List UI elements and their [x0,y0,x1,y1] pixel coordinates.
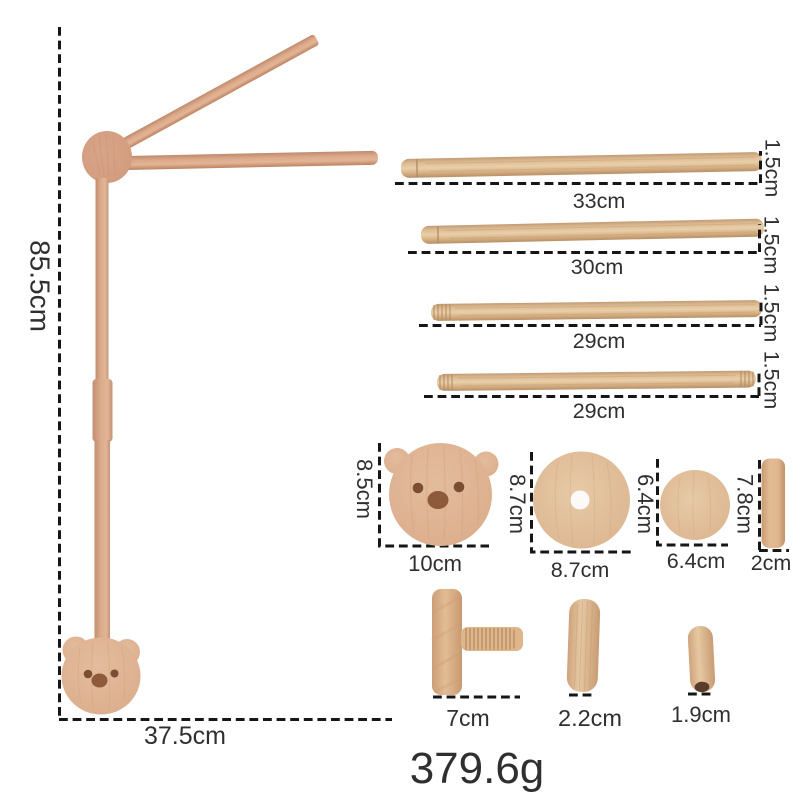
svg-text:8.7cm: 8.7cm [505,474,530,534]
svg-text:1.5cm: 1.5cm [759,351,783,410]
svg-text:379.6g: 379.6g [410,744,545,793]
svg-text:7.8cm: 7.8cm [733,474,758,534]
svg-text:1.5cm: 1.5cm [759,284,783,343]
svg-text:29cm: 29cm [573,399,626,423]
svg-text:10cm: 10cm [408,551,462,576]
svg-text:6.4cm: 6.4cm [667,549,726,573]
svg-text:30cm: 30cm [571,255,624,279]
svg-text:1.9cm: 1.9cm [671,702,731,727]
svg-text:2.2cm: 2.2cm [558,705,622,731]
svg-text:2cm: 2cm [751,551,792,575]
svg-text:8.5cm: 8.5cm [352,459,377,519]
svg-text:33cm: 33cm [573,189,626,213]
svg-text:85.5cm: 85.5cm [25,240,56,332]
svg-text:8.7cm: 8.7cm [551,558,610,582]
svg-text:1.5cm: 1.5cm [759,216,783,275]
svg-text:1.5cm: 1.5cm [760,139,784,198]
svg-text:6.4cm: 6.4cm [633,474,658,534]
svg-text:37.5cm: 37.5cm [144,722,226,750]
svg-text:7cm: 7cm [446,705,489,731]
svg-text:29cm: 29cm [573,329,626,353]
